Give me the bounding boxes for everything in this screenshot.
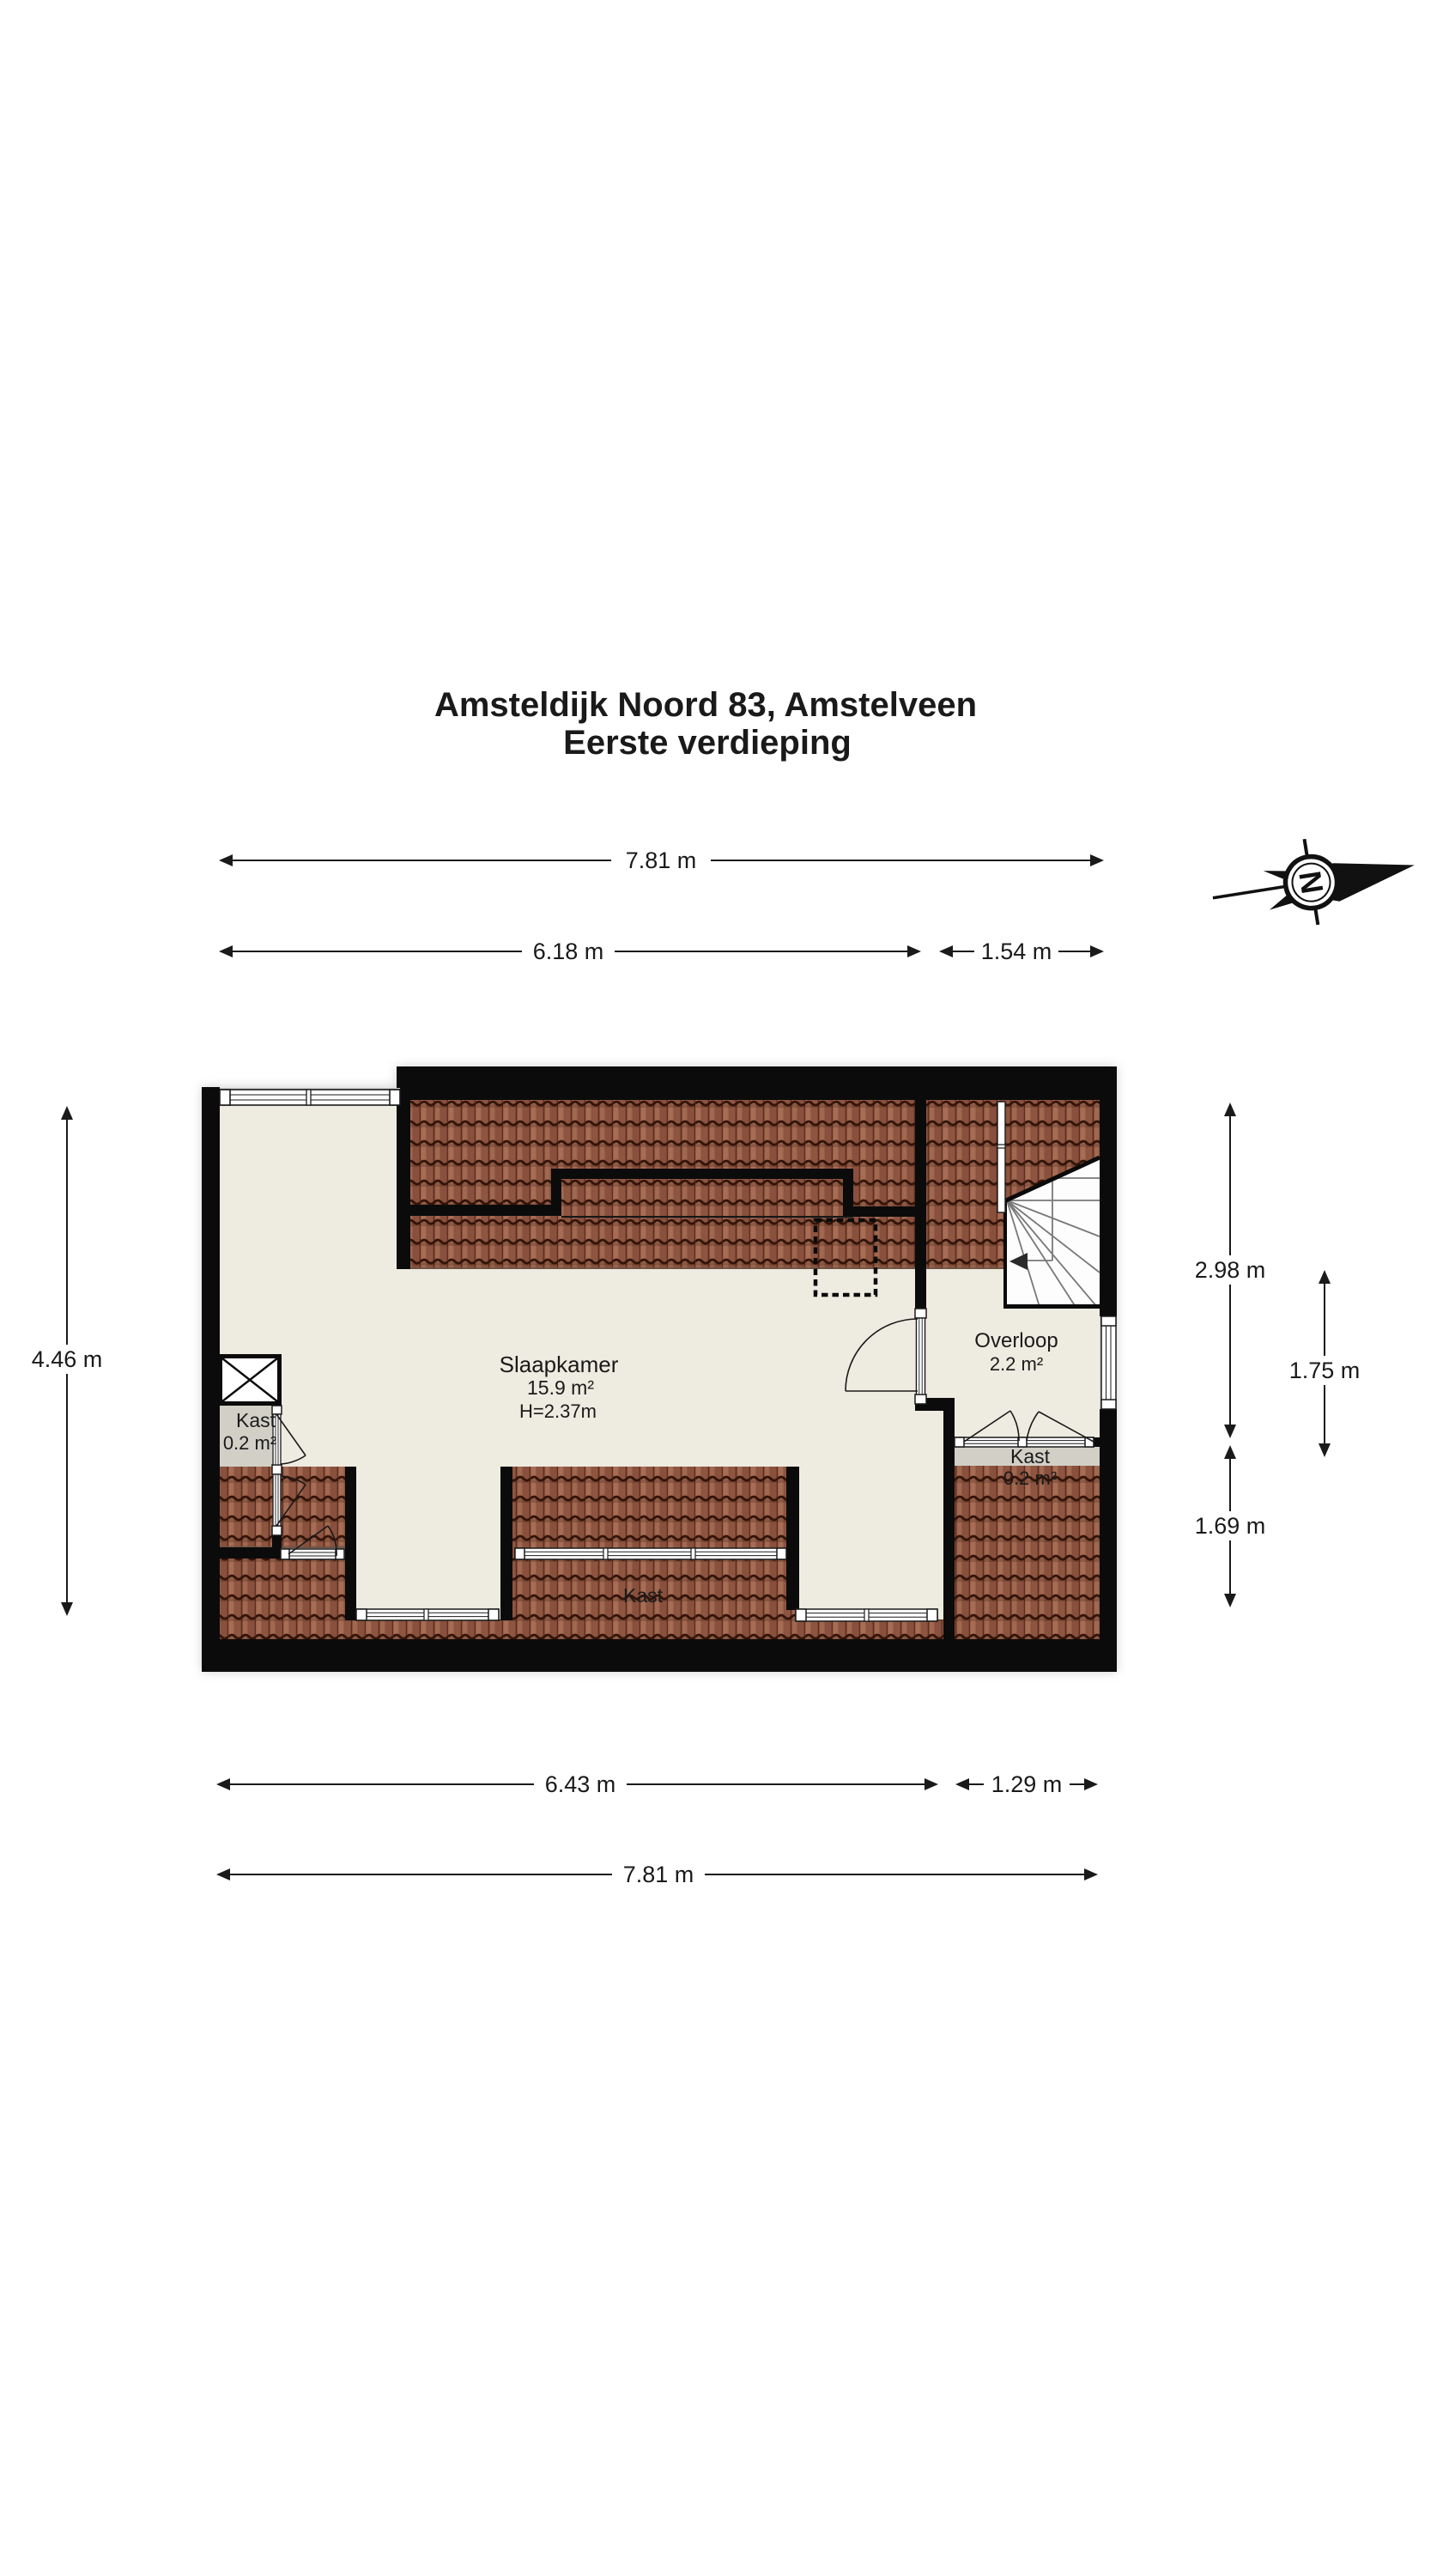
- svg-text:7.81 m: 7.81 m: [626, 848, 697, 873]
- svg-text:Eerste verdieping: Eerste verdieping: [563, 724, 852, 762]
- svg-text:1.69 m: 1.69 m: [1195, 1513, 1266, 1539]
- svg-text:1.75 m: 1.75 m: [1289, 1358, 1361, 1383]
- svg-text:15.9 m²: 15.9 m²: [527, 1376, 594, 1399]
- svg-text:H=2.37m: H=2.37m: [519, 1400, 597, 1422]
- svg-text:1.29 m: 1.29 m: [991, 1771, 1063, 1797]
- svg-text:0.2 m²: 0.2 m²: [1003, 1467, 1057, 1489]
- svg-text:6.18 m: 6.18 m: [533, 939, 604, 964]
- svg-text:Amsteldijk Noord 83, Amstelvee: Amsteldijk Noord 83, Amstelveen: [434, 686, 977, 724]
- svg-text:Slaapkamer: Slaapkamer: [500, 1352, 619, 1377]
- svg-text:2.2 m²: 2.2 m²: [990, 1353, 1043, 1375]
- svg-text:Kast: Kast: [236, 1409, 276, 1431]
- svg-text:7.81 m: 7.81 m: [623, 1862, 694, 1887]
- svg-text:Kast: Kast: [623, 1584, 664, 1607]
- svg-text:Overloop: Overloop: [974, 1329, 1058, 1352]
- svg-text:6.43 m: 6.43 m: [545, 1771, 616, 1797]
- svg-text:Kast: Kast: [1010, 1445, 1051, 1467]
- svg-text:4.46 m: 4.46 m: [32, 1346, 103, 1372]
- svg-text:1.54 m: 1.54 m: [981, 939, 1052, 964]
- svg-text:0.2 m²: 0.2 m²: [223, 1432, 276, 1454]
- svg-text:2.98 m: 2.98 m: [1195, 1257, 1266, 1283]
